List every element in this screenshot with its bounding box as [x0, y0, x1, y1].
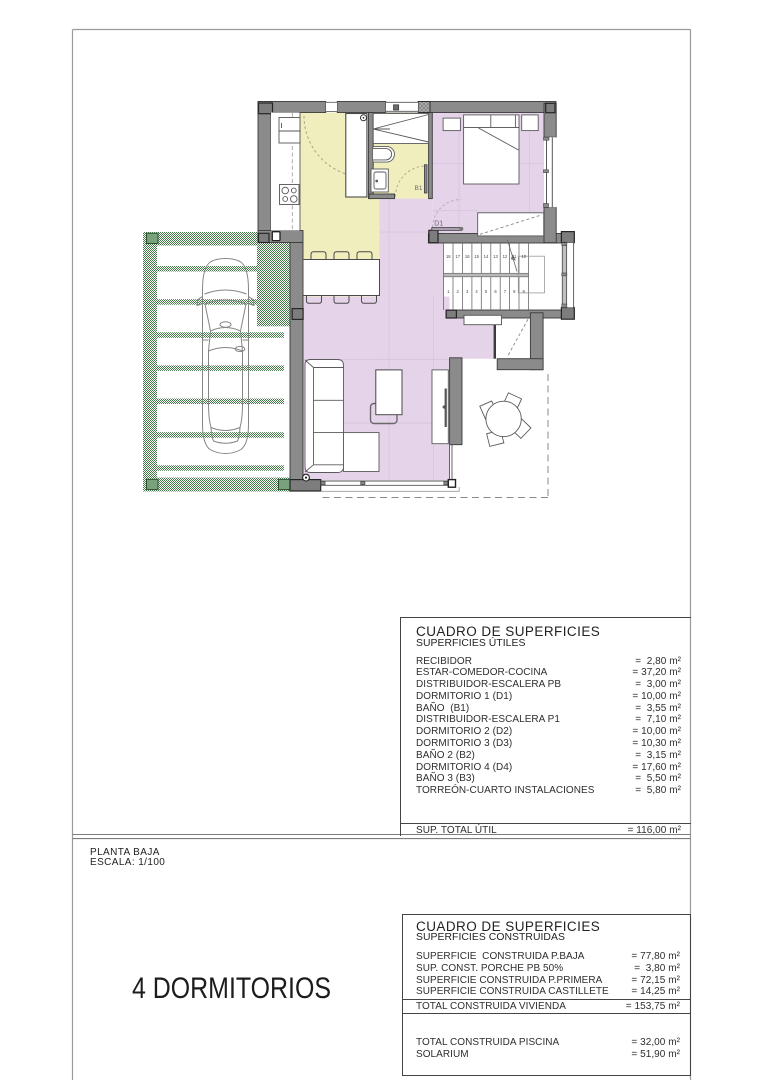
svg-text:18: 18: [446, 254, 451, 259]
svg-text:6: 6: [494, 289, 497, 294]
svg-text:12: 12: [503, 254, 508, 259]
svg-text:13: 13: [493, 254, 498, 259]
svg-text:1: 1: [447, 289, 450, 294]
svg-text:7: 7: [504, 289, 507, 294]
svg-text:10: 10: [521, 254, 526, 259]
svg-text:3: 3: [466, 289, 469, 294]
svg-text:17: 17: [455, 254, 460, 259]
svg-text:11: 11: [512, 254, 517, 259]
svg-text:2: 2: [457, 289, 460, 294]
svg-text:15: 15: [474, 254, 479, 259]
svg-text:4: 4: [475, 289, 478, 294]
svg-text:8: 8: [513, 289, 516, 294]
svg-text:B1: B1: [415, 185, 423, 192]
svg-text:14: 14: [484, 254, 489, 259]
svg-text:D1: D1: [434, 221, 443, 228]
svg-text:16: 16: [465, 254, 470, 259]
svg-text:5: 5: [485, 289, 488, 294]
